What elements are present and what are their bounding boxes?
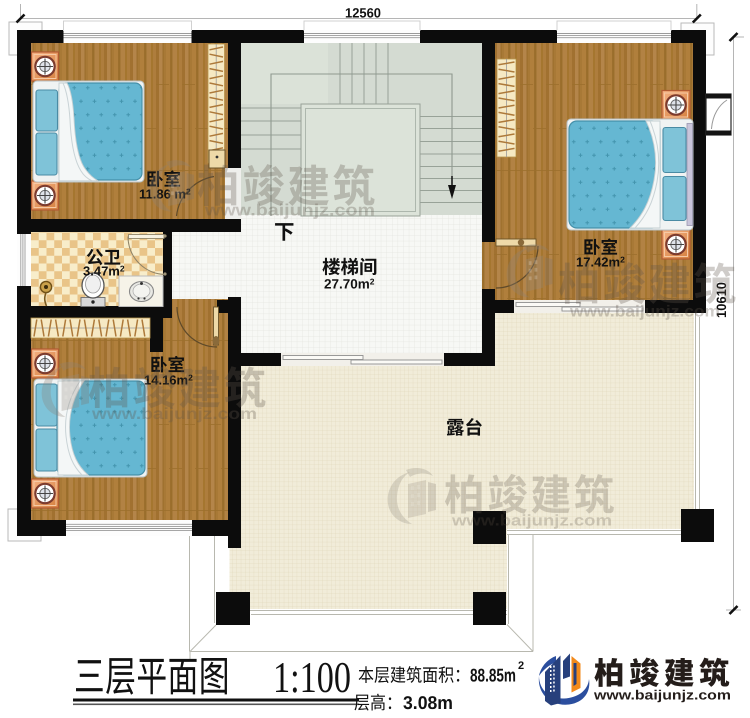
svg-text:www.baijunjz.com: www.baijunjz.com <box>569 304 720 321</box>
svg-text:3.08m: 3.08m <box>403 692 453 713</box>
svg-text:www.baijunjz.com: www.baijunjz.com <box>204 202 375 220</box>
svg-text:www.baijunjz.com: www.baijunjz.com <box>593 688 731 703</box>
svg-text:www.baijunjz.com: www.baijunjz.com <box>451 513 612 530</box>
svg-text:www.baijunjz.com: www.baijunjz.com <box>91 406 257 423</box>
svg-text:27.70m2: 27.70m2 <box>324 277 375 292</box>
svg-text:1:100: 1:100 <box>273 653 351 702</box>
svg-text:2: 2 <box>518 660 524 672</box>
svg-text:12560: 12560 <box>345 6 381 21</box>
svg-text:88.85m: 88.85m <box>470 665 516 686</box>
svg-text:3.47m2: 3.47m2 <box>83 264 125 279</box>
